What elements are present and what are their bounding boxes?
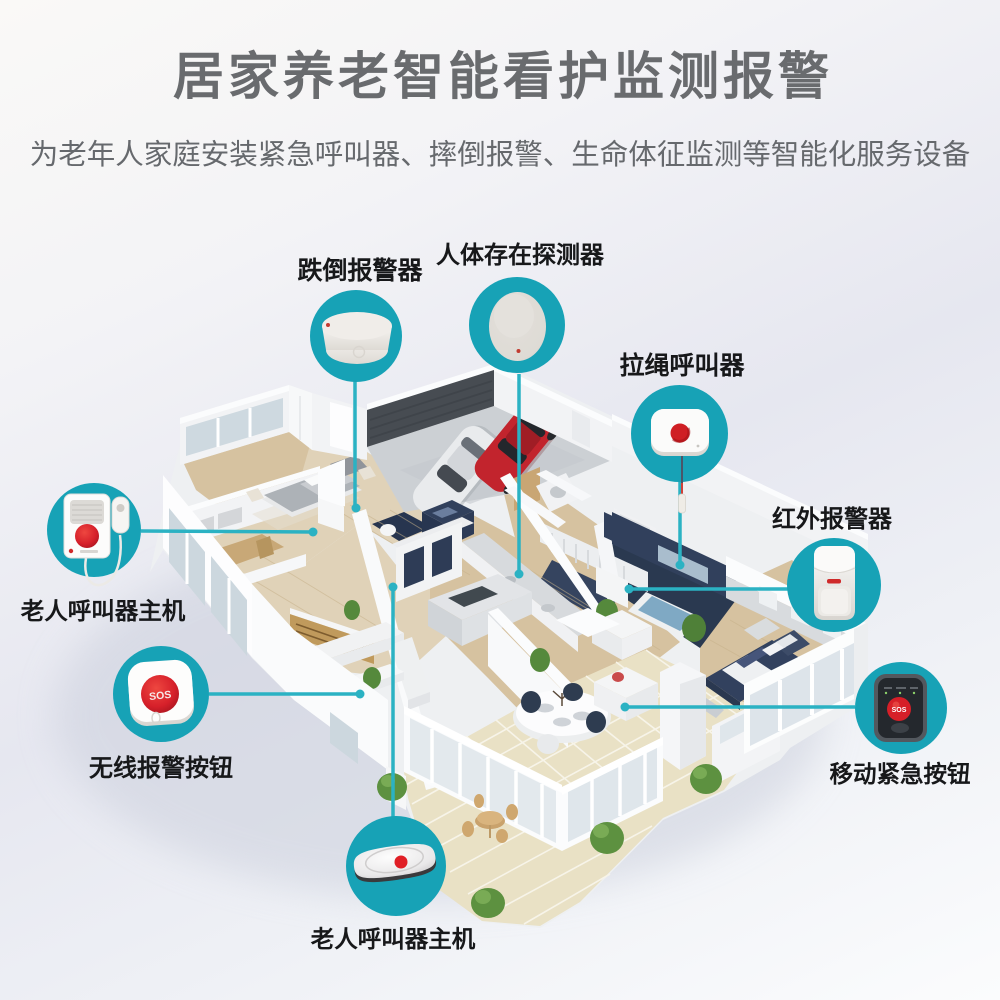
svg-text:老人呼叫器主机: 老人呼叫器主机 xyxy=(21,598,186,624)
svg-text:拉绳呼叫器: 拉绳呼叫器 xyxy=(619,351,745,380)
svg-text:移动紧急按钮: 移动紧急按钮 xyxy=(830,760,971,787)
svg-text:无线报警按钮: 无线报警按钮 xyxy=(89,754,233,782)
svg-text:跌倒报警器: 跌倒报警器 xyxy=(297,257,423,285)
svg-text:为老年人家庭安装紧急呼叫器、摔倒报警、生命体征监测等智能化服: 为老年人家庭安装紧急呼叫器、摔倒报警、生命体征监测等智能化服务设备 xyxy=(30,139,971,171)
svg-text:老人呼叫器主机: 老人呼叫器主机 xyxy=(311,926,476,952)
svg-text:居家养老智能看护监测报警: 居家养老智能看护监测报警 xyxy=(173,48,833,105)
svg-text:红外报警器: 红外报警器 xyxy=(772,505,893,533)
svg-text:SOS: SOS xyxy=(892,707,907,714)
svg-text:人体存在探测器: 人体存在探测器 xyxy=(436,241,605,269)
svg-text:SOS: SOS xyxy=(149,689,172,703)
